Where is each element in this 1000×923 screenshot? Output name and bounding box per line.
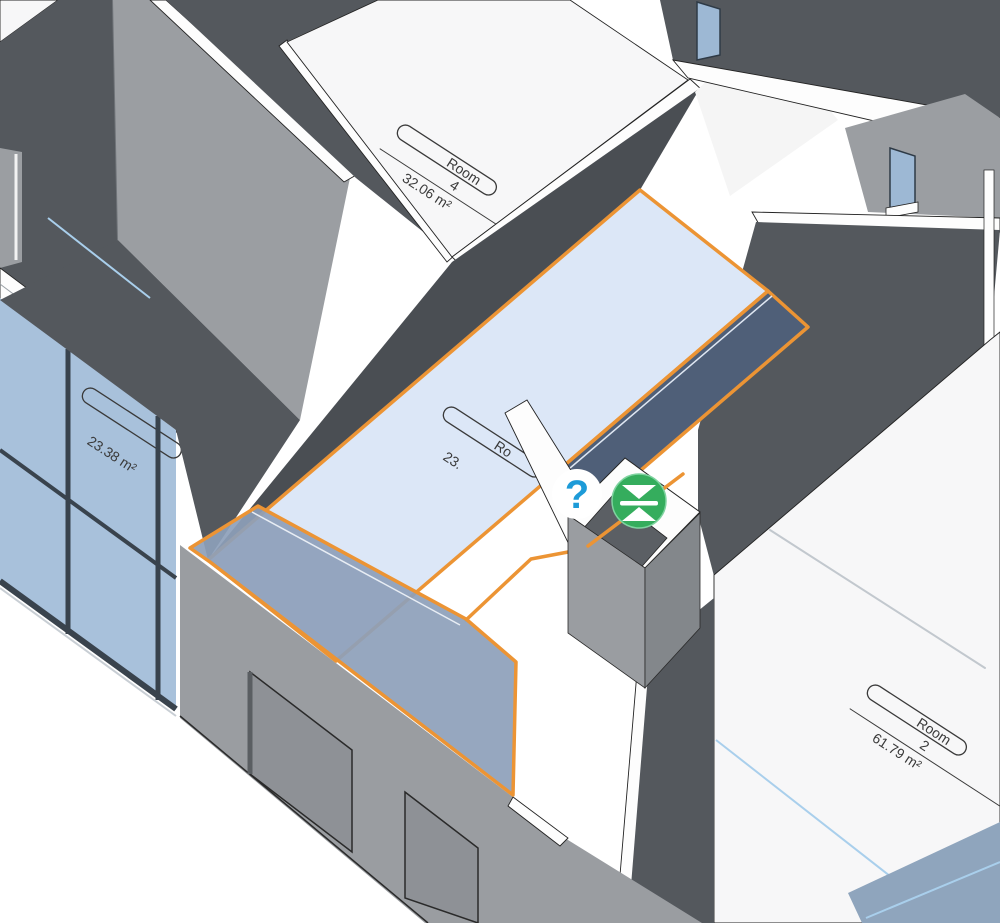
flip-control-icon[interactable]: [612, 474, 666, 528]
cad-3d-viewport[interactable]: Room 4 32.06 m² Room 2 61.79 m² 23.38 m²: [0, 0, 1000, 923]
wall-end-white-room2: [984, 170, 994, 345]
window-pane-room2[interactable]: [890, 148, 915, 210]
flip-bar: [620, 501, 658, 506]
help-badge-icon[interactable]: ?: [552, 469, 602, 519]
window-pane-top[interactable]: [697, 2, 720, 60]
help-glyph: ?: [565, 473, 589, 517]
window-jamb-topleft[interactable]: [0, 148, 22, 268]
